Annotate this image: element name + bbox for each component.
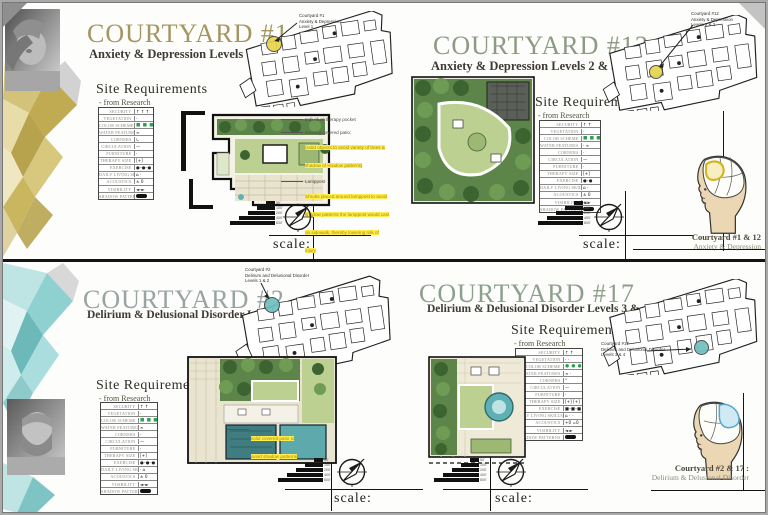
key-map-callout-line: Levels 3 & 4 <box>601 352 665 358</box>
scale-bar <box>470 458 479 461</box>
req-label: ACOUSTICS <box>99 179 135 184</box>
req-label: WATER FEATURES <box>101 425 139 430</box>
scale-bar-row: 400' <box>229 216 287 220</box>
q1-annotations: Individual therapy pocketExisting covere… <box>305 117 391 264</box>
req-label: COLOR SCHEME <box>99 123 135 128</box>
req-label: SECURITY <box>516 350 564 355</box>
req-label: DAILY LIVING SKILLS <box>101 467 139 472</box>
req-value: — <box>139 439 158 444</box>
req-value <box>564 435 583 440</box>
req-table-row: WATER FEATURES· ≈ <box>540 142 600 149</box>
scale-tick-label: 100' <box>479 463 491 467</box>
plan-annotation: LamppostShrubs placed around lamppost to… <box>305 179 391 257</box>
req-label: EXERCISE <box>540 178 582 183</box>
req-label: THERAPY SIZE <box>540 171 582 176</box>
req-value: ■ ■ ■ <box>135 123 154 128</box>
scale-bar-row: 100' <box>537 206 595 210</box>
scale-tick-label: 600' <box>479 478 491 482</box>
req-value: ◄–► <box>135 187 154 192</box>
scale-bar-row: 400' <box>537 216 595 220</box>
req-value: · <box>135 116 154 121</box>
scale-bar-row: 400' <box>277 473 335 477</box>
panel-top-caption-sub: Anxiety & Depression <box>649 242 761 251</box>
scale-tick-label: 400' <box>323 473 335 477</box>
req-table-row: DAILY LIVING SKILLS⌂ · <box>99 172 153 179</box>
req-table-row: DAILY LIVING SKILLS· ⌂ <box>101 467 157 474</box>
req-table-row: ACOUSTICS± 0 <box>101 474 157 481</box>
req-table-row: SECURITY↑ ↑ <box>101 403 157 410</box>
req-label: VISIBILITY <box>99 187 135 192</box>
q17-site-req-subheading: - from Research <box>514 339 566 348</box>
q1-key-map-callout: Courtyard #1Anxiety & DepressionLevel 1 <box>299 13 341 30</box>
req-value: · ⌂ <box>139 467 158 472</box>
req-label: ACOUSTICS <box>540 192 582 197</box>
q12-courtyard-plan <box>411 76 535 204</box>
scale-bar-row: 200' <box>229 211 287 215</box>
req-label: FURNITURE <box>101 446 139 451</box>
q12-site-req-subheading: - from Research <box>538 111 590 120</box>
scale-bar-row: 200' <box>433 468 491 472</box>
scale-bar-row: 50' <box>229 201 287 205</box>
req-table-row: VISIBILITY◄–► <box>99 186 153 193</box>
q1-scale-bars: 50'100'200'400'600' <box>229 201 287 226</box>
req-table-row: VEGETATION· <box>101 410 157 417</box>
key-map-callout-line: Levels 1 & 2 <box>245 278 309 284</box>
req-value: [+] [+] <box>564 399 583 404</box>
q2-key-map-callout: Courtyard #2Delirium and Delusional Diso… <box>245 267 309 284</box>
req-table-row: VISIBILITY◄–► <box>101 481 157 488</box>
req-value: · <box>139 411 158 416</box>
scale-bar <box>452 468 479 471</box>
req-table-row: VEGETATION· <box>540 128 600 135</box>
req-value: — <box>135 144 154 149</box>
req-value: ≈ <box>139 425 158 430</box>
req-label: VEGETATION <box>540 129 582 134</box>
scale-bar <box>314 458 323 461</box>
q1-subtitle: Anxiety & Depression Levels 1 <box>89 47 253 62</box>
req-label: SHADOW PATTERNS <box>101 489 139 494</box>
req-label: EXERCISE <box>99 165 135 170</box>
req-label: CORNERS <box>99 137 135 142</box>
req-value: · <box>582 129 601 134</box>
req-label: ACOUSTICS <box>101 474 139 479</box>
req-label: CIRCULATION <box>99 144 135 149</box>
req-table-row: DAILY LIVING SKILLS⌂ · <box>540 185 600 192</box>
req-table-row: SHADOW PATTERNS <box>99 193 153 199</box>
q17-scale-label: scale: <box>495 491 533 507</box>
q17-key-map: Courtyard #17Delirium and Delusional Dis… <box>595 279 765 375</box>
plan-annotation: Individual therapy pocket <box>305 117 391 123</box>
req-value: ± 0 <box>139 474 158 479</box>
req-value: ↑ ↑ <box>582 122 601 127</box>
annotation-highlighted-text: Shrubs placed around lamppost to avoid s… <box>305 194 389 253</box>
panel-bottom-caption-sub: Delirium & Delusional Disorder <box>631 473 749 482</box>
req-label: VEGETATION <box>101 411 139 416</box>
head-diagram-anxiety <box>669 149 757 235</box>
scale-bar-row: 400' <box>433 473 491 477</box>
req-value: — <box>582 157 601 162</box>
req-value: ↑ ↑ <box>564 350 583 355</box>
req-label: FURNITURE <box>99 151 135 156</box>
req-label: SECURITY <box>99 109 135 114</box>
key-map-callout-line: Level 1 <box>299 24 341 30</box>
req-value: ◄–► <box>139 482 158 487</box>
q12-scale-label: scale: <box>583 237 621 253</box>
req-label: FURNITURE <box>540 164 582 169</box>
req-table-row: FURNITURE· <box>101 446 157 453</box>
req-label: THERAPY SIZE <box>101 453 139 458</box>
scale-bar <box>287 473 323 476</box>
req-table-row: CORNERS· <box>540 149 600 156</box>
annotation-plain-text: Individual therapy pocket <box>305 117 391 123</box>
req-value <box>135 194 154 199</box>
scale-tick-label: 200' <box>323 468 335 472</box>
req-label: SECURITY <box>540 122 582 127</box>
req-value: · <box>135 151 154 156</box>
scale-tick-label: 400' <box>479 473 491 477</box>
scale-tick-label: 200' <box>479 468 491 472</box>
scale-bar <box>538 221 583 224</box>
req-value: · <box>582 150 601 155</box>
portrait-photo-delirium <box>7 399 65 475</box>
req-table-row: COLOR SCHEME■ ■ ■ <box>540 135 600 142</box>
scale-bar <box>461 463 479 466</box>
q12-site-req-table: SECURITY↑ ↑VEGETATION·COLOR SCHEME■ ■ ■W… <box>539 120 601 213</box>
scale-bar <box>443 473 479 476</box>
req-value: · <box>582 164 601 169</box>
scale-bar <box>257 206 275 209</box>
req-value: · <box>139 446 158 451</box>
req-table-row: COLOR SCHEME■ ■ ■ <box>101 417 157 424</box>
req-value: ⌂ · · <box>564 413 583 418</box>
key-map-callout-line: Levels 2 & 3 <box>691 22 733 28</box>
scale-bar-row: 600' <box>537 221 595 225</box>
presentation-board: COURTYARD #1 Anxiety & Depression Levels… <box>2 2 766 513</box>
scale-bar <box>230 221 275 224</box>
req-label: SHADOW PATTERNS <box>99 194 135 199</box>
plan-annotation: Existing covered patio:(solid objects to… <box>305 130 391 172</box>
panel-bottom-caption: Courtyard #2 & 17 : <box>637 463 749 473</box>
scale-tick-label: 50' <box>479 458 491 462</box>
req-label: SECURITY <box>101 404 139 409</box>
req-value: ≈ <box>135 130 154 135</box>
req-label: CIRCULATION <box>540 157 582 162</box>
scale-bar <box>574 201 583 204</box>
req-table-row: CIRCULATION— <box>540 156 600 163</box>
scale-bar-row: 100' <box>433 463 491 467</box>
req-table-row: CIRCULATION— <box>101 438 157 445</box>
req-value: ∟ <box>135 137 154 142</box>
scale-bar-row: 100' <box>277 463 335 467</box>
scale-bar-row: 200' <box>277 468 335 472</box>
req-label: COLOR SCHEME <box>101 418 139 423</box>
req-value: ± 0 <box>582 192 601 197</box>
scale-bar <box>565 206 583 209</box>
req-value: · <box>564 392 583 397</box>
req-table-row: EXERCISE●–●–● <box>99 165 153 172</box>
q1-scale-label: scale: <box>273 237 311 253</box>
scale-tick-label: 100' <box>323 463 335 467</box>
req-value: ° <box>564 378 583 383</box>
scale-tick-label: 50' <box>323 458 335 462</box>
corner-fold-top-left <box>3 3 27 27</box>
req-table-row: SECURITY↑ ↑ ↑ <box>99 108 153 115</box>
req-label: CORNERS <box>101 432 139 437</box>
scale-bar <box>547 216 583 219</box>
req-value: ↑ ↑ ↑ <box>135 109 154 114</box>
req-value: · <box>139 432 158 437</box>
q1-site-req-heading: Site Requirements <box>96 82 208 98</box>
q17-north-arrow <box>495 456 527 488</box>
panel-top-caption: Courtyard #1 & 12 <box>649 232 761 242</box>
req-value: ■–■–■ <box>564 406 583 411</box>
req-value <box>139 489 158 494</box>
req-value: ●–● <box>582 178 601 183</box>
req-value: ⌂ · <box>582 185 601 190</box>
scale-bar <box>278 478 323 481</box>
q2-scale-label: scale: <box>334 491 372 507</box>
req-label: WATER FEATURES <box>99 130 135 135</box>
req-value: ≈ · <box>564 371 583 376</box>
scale-bar-row: 200' <box>537 211 595 215</box>
q1-north-arrow <box>282 201 314 233</box>
scale-bar-row: 600' <box>433 478 491 482</box>
annotation-leader-line <box>227 429 249 430</box>
req-table-row: EXERCISE●–●–● <box>101 460 157 467</box>
req-value: +0 =0 <box>564 420 583 425</box>
q12-callout-arrow <box>595 15 765 111</box>
scale-bar-row: 50' <box>433 458 491 462</box>
panel-bottom-horizontal-rule <box>651 490 765 491</box>
annotation-leader-line <box>281 132 303 133</box>
q17-courtyard-plan <box>427 355 527 467</box>
req-table-row: CIRCULATION— <box>99 143 153 150</box>
req-value: · ≈ <box>582 143 601 148</box>
req-table-row: ACOUSTICS± 0 <box>540 192 600 199</box>
scale-bar <box>434 478 479 481</box>
req-label: VISIBILITY <box>101 482 139 487</box>
req-value: ◄ ► <box>564 428 583 433</box>
req-table-row: ACOUSTICS± 0 <box>99 179 153 186</box>
req-label: CIRCULATION <box>101 439 139 444</box>
req-label: WATER FEATURES <box>540 143 582 148</box>
req-value: ●–●–● <box>135 165 154 170</box>
scale-bar <box>248 211 275 214</box>
req-label: DAILY LIVING SKILLS <box>540 185 582 190</box>
scale-bar-row: 50' <box>277 458 335 462</box>
req-value: ± 0 <box>135 179 154 184</box>
req-value: [+] <box>139 453 158 458</box>
req-table-row: THERAPY SIZE[+] <box>540 171 600 178</box>
scale-bar-row: 50' <box>537 201 595 205</box>
q2-north-arrow <box>336 456 368 488</box>
annotation-leader-line <box>281 119 303 120</box>
q2-horizontal-rule <box>285 489 423 490</box>
q1-key-map: Courtyard #1Anxiety & DepressionLevel 1 <box>235 11 397 107</box>
req-value: ● ● ● <box>564 364 583 369</box>
annotation-highlighted-text: (solid objects to avoid variety of trees… <box>305 145 385 168</box>
q17-scale-bars: 50'100'200'400'600' <box>433 458 491 483</box>
q12-north-arrow <box>593 201 625 233</box>
annotation-highlighted-text: solid covered patio to avoid shadow patt… <box>251 436 297 459</box>
req-value: [+] <box>582 171 601 176</box>
req-table-row: EXERCISE●–● <box>540 178 600 185</box>
req-table-row: CORNERS∟ <box>99 136 153 143</box>
req-value: ■ ■ ■ <box>582 136 601 141</box>
req-value: — <box>564 385 583 390</box>
scale-bar-row: 100' <box>229 206 287 210</box>
req-label: EXERCISE <box>101 460 139 465</box>
decorative-facets-bottom <box>3 263 81 513</box>
req-table-row: WATER FEATURES≈ <box>99 129 153 136</box>
q1-site-req-table: SECURITY↑ ↑ ↑VEGETATION·COLOR SCHEME■ ■ … <box>98 107 154 200</box>
scale-bar <box>305 463 323 466</box>
q12-key-map: Courtyard #12Anxiety & DepressionLevels … <box>595 15 765 111</box>
scale-bar <box>266 201 275 204</box>
req-label: DAILY LIVING SKILLS <box>99 172 135 177</box>
req-label: CORNERS <box>540 150 582 155</box>
q12-vertical-rule <box>625 191 626 259</box>
scale-bar <box>296 468 323 471</box>
req-label: COLOR SCHEME <box>540 136 582 141</box>
req-table-row: SECURITY↑ ↑ <box>540 121 600 128</box>
req-table-row: THERAPY SIZE[+] <box>101 453 157 460</box>
req-table-row: VEGETATION· <box>99 115 153 122</box>
req-table-row: CORNERS· <box>101 431 157 438</box>
req-label: VEGETATION <box>99 116 135 121</box>
scale-tick-label: 600' <box>323 478 335 482</box>
q17-horizontal-rule <box>443 489 588 490</box>
req-table-row: COLOR SCHEME■ ■ ■ <box>99 122 153 129</box>
req-value: ■ ■ ■ <box>139 418 158 423</box>
scale-bar <box>556 211 583 214</box>
req-value: ↑ ↑ <box>139 404 158 409</box>
q12-key-map-callout: Courtyard #12Anxiety & DepressionLevels … <box>691 11 733 28</box>
q1-site-req-subheading: - from Research <box>99 98 151 107</box>
req-value: ⌂ · <box>135 172 154 177</box>
q12-subtitle: Anxiety & Depression Levels 2 & 3 <box>431 59 618 74</box>
req-table-row: WATER FEATURES≈ <box>101 424 157 431</box>
q2-scale-bars: 50'100'200'400'600' <box>277 458 335 483</box>
req-table-row: SHADOW PATTERNS <box>101 488 157 494</box>
req-value: · · <box>564 357 583 362</box>
req-label: THERAPY SIZE <box>99 158 135 163</box>
annotation-leader-line <box>281 181 303 182</box>
presentation-board-frame: COURTYARD #1 Anxiety & Depression Levels… <box>0 0 768 515</box>
req-table-row: THERAPY SIZE[+] <box>99 158 153 165</box>
scale-bar <box>239 216 275 219</box>
scale-bar-row: 600' <box>229 221 287 225</box>
req-table-row: FURNITURE· <box>540 164 600 171</box>
req-value: [+] <box>135 158 154 163</box>
q12-scale-bars: 50'100'200'400'600' <box>537 201 595 226</box>
q17-callout-arrow <box>595 279 765 375</box>
q17-key-map-callout: Courtyard #17Delirium and Delusional Dis… <box>601 341 665 358</box>
req-table-row: FURNITURE· <box>99 151 153 158</box>
scale-bar-row: 600' <box>277 478 335 482</box>
q2-site-req-table: SECURITY↑ ↑VEGETATION·COLOR SCHEME■ ■ ■W… <box>100 402 158 495</box>
req-value: ●–●–● <box>139 460 158 465</box>
